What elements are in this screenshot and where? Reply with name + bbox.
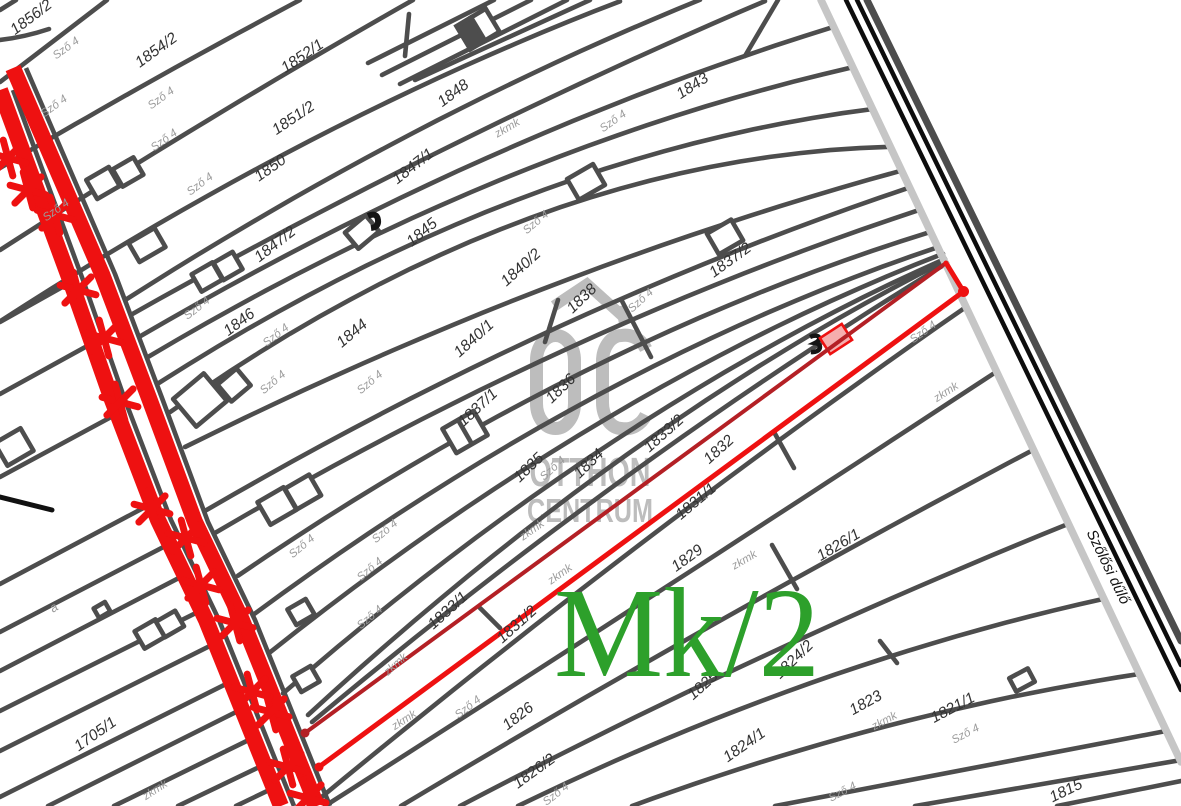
svg-text:Mk/2: Mk/2 bbox=[554, 562, 820, 704]
